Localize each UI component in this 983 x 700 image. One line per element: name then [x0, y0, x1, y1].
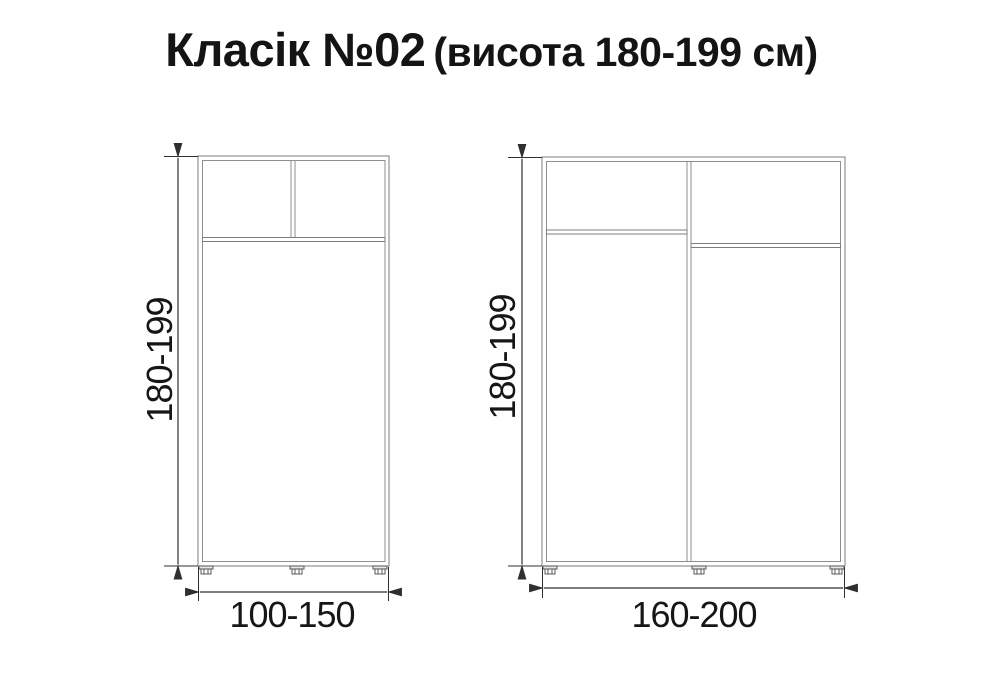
large-wardrobe-width-label: 160-200: [584, 592, 804, 638]
large-wardrobe-left-shelf: [547, 230, 688, 234]
foot: [830, 566, 844, 574]
foot: [373, 566, 387, 574]
large-wardrobe-center-divider: [687, 162, 691, 562]
large-wardrobe-drawing: [508, 157, 845, 598]
large-wardrobe-height-label: 180-199: [480, 247, 526, 467]
furniture-dimension-sheet: Класік №02(висота 180-199 см): [0, 0, 983, 700]
foot: [692, 566, 706, 574]
foot: [290, 566, 304, 574]
small-wardrobe-height-label: 180-199: [137, 250, 183, 470]
small-wardrobe-shelf: [203, 238, 386, 242]
small-wardrobe-feet: [199, 566, 387, 574]
foot: [199, 566, 213, 574]
large-wardrobe-feet: [543, 566, 844, 574]
small-wardrobe-top-divider: [291, 161, 295, 238]
large-wardrobe-right-shelf: [691, 244, 841, 248]
small-wardrobe-drawing: [164, 156, 389, 601]
foot: [543, 566, 557, 574]
small-wardrobe-width-label: 100-150: [182, 592, 402, 638]
large-wardrobe-inner-frame: [547, 162, 841, 562]
